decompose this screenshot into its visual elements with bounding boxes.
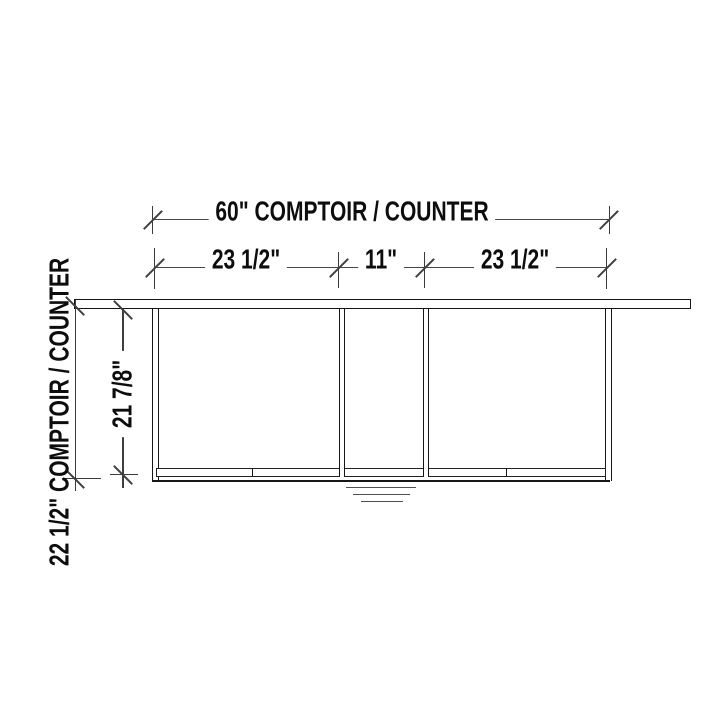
dim21-label: 21 7/8" <box>107 351 136 437</box>
cabinet-divider-left <box>339 309 346 478</box>
dim-right-section-label: 23 1/2" <box>474 244 556 273</box>
cabinet-bottom-rail <box>156 468 606 478</box>
bottom-rail-joint-left <box>252 468 253 477</box>
cabinet-divider-right <box>423 309 430 478</box>
cabinet-left-side-panel <box>152 309 159 482</box>
ground-symbol-line-3 <box>361 501 403 503</box>
dim-left-section-label: 23 1/2" <box>205 244 287 273</box>
dim60-label: 60" COMPTOIR / COUNTER <box>209 196 496 225</box>
countertop-slab <box>74 299 691 309</box>
dim22-label: 22 1/2" COMPTOIR / COUNTER <box>44 258 73 566</box>
dim-middle-section-label: 11" <box>358 244 404 273</box>
cabinet-bottom-edge <box>152 480 610 482</box>
dim22-line <box>75 300 77 491</box>
ground-symbol-line-2 <box>353 494 410 496</box>
technical-drawing: 60" COMPTOIR / COUNTER 23 1/2" 11" 23 1/… <box>0 0 720 720</box>
ground-symbol-line-1 <box>346 487 416 489</box>
cabinet-right-side-panel <box>605 309 612 482</box>
bottom-rail-joint-right <box>506 468 507 477</box>
dim21-floor-extension <box>110 474 138 475</box>
